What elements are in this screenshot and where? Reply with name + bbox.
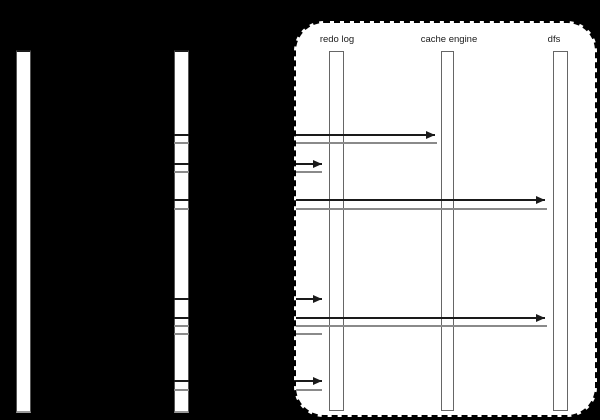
message-arrowhead-icon (426, 131, 435, 139)
message-return-line (296, 389, 322, 391)
message-arrowhead-icon (536, 314, 545, 322)
message-return-line (296, 208, 547, 210)
activation-bar-left-1 (16, 50, 31, 413)
activation-bar-left-2 (174, 50, 189, 413)
message-arrowhead-icon (536, 196, 545, 204)
message-arrowhead-icon (313, 295, 322, 303)
message-return-line (296, 333, 322, 335)
activation-bar-cache-engine (441, 51, 454, 411)
lifeline-label-dfs: dfs (548, 34, 561, 46)
activation-bar-redo-log (329, 51, 344, 411)
message-return-line (296, 142, 437, 144)
sequence-diagram: redo log cache engine dfs (0, 0, 600, 420)
message-call-line (296, 317, 545, 319)
lifeline-label-redo-log: redo log (320, 34, 354, 46)
message-arrowhead-icon (313, 160, 322, 168)
message-return-line (296, 171, 322, 173)
system-boundary-frame: redo log cache engine dfs (294, 21, 597, 417)
message-call-line (296, 134, 435, 136)
lifeline-label-cache-engine: cache engine (421, 34, 478, 46)
message-arrowhead-icon (313, 377, 322, 385)
message-call-line (296, 199, 545, 201)
message-return-line (296, 325, 547, 327)
activation-bar-dfs (553, 51, 568, 411)
